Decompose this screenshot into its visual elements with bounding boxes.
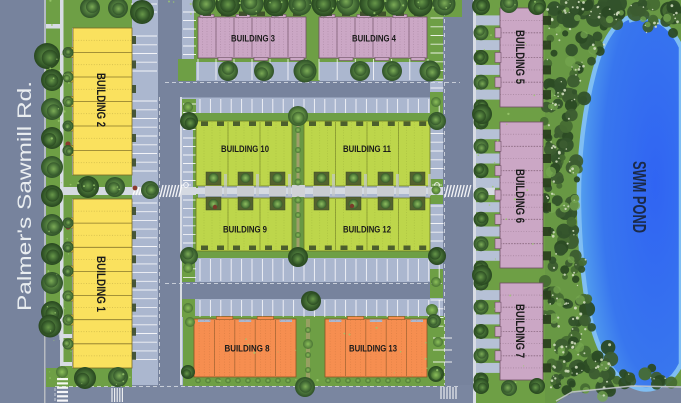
svg-text:BUILDING 2: BUILDING 2 <box>94 73 106 127</box>
svg-text:SWM POND: SWM POND <box>629 161 650 233</box>
svg-text:Palmer's Sawmill Rd.: Palmer's Sawmill Rd. <box>15 81 36 311</box>
svg-text:BUILDING 4: BUILDING 4 <box>352 34 397 45</box>
svg-text:BUILDING 7: BUILDING 7 <box>513 304 525 358</box>
svg-text:BUILDING 10: BUILDING 10 <box>221 144 269 155</box>
svg-text:BUILDING 5: BUILDING 5 <box>513 30 525 84</box>
svg-text:BUILDING 11: BUILDING 11 <box>343 144 392 155</box>
svg-text:BUILDING 12: BUILDING 12 <box>343 225 391 236</box>
svg-text:BUILDING 6: BUILDING 6 <box>513 169 525 223</box>
svg-text:BUILDING 1: BUILDING 1 <box>94 256 106 313</box>
svg-text:BUILDING 3: BUILDING 3 <box>231 34 275 45</box>
svg-text:BUILDING 13: BUILDING 13 <box>349 344 397 355</box>
svg-text:BUILDING 9: BUILDING 9 <box>223 225 267 236</box>
svg-text:BUILDING 8: BUILDING 8 <box>225 344 270 355</box>
